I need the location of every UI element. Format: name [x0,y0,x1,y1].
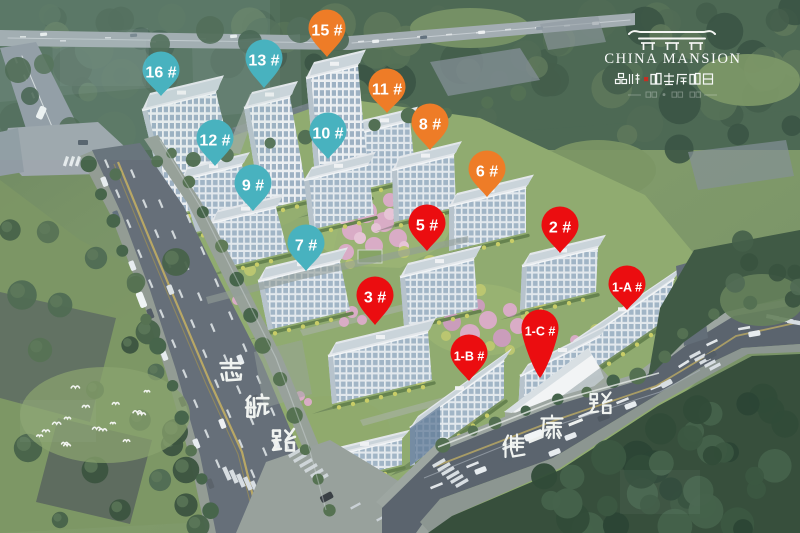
svg-text:15 #: 15 # [311,23,342,40]
svg-text:9 #: 9 # [242,178,264,195]
svg-text:2 #: 2 # [549,220,571,237]
svg-text:5 #: 5 # [416,218,438,235]
svg-text:11 #: 11 # [372,82,402,99]
svg-text:CHINA MANSION: CHINA MANSION [604,51,741,67]
svg-text:7 #: 7 # [295,238,317,255]
svg-text:1-C #: 1-C # [525,325,556,339]
svg-text:1-B #: 1-B # [454,350,485,364]
svg-text:12 #: 12 # [199,133,230,150]
svg-text:8 #: 8 # [419,117,441,134]
svg-text:16 #: 16 # [145,65,176,82]
svg-text:3 #: 3 # [364,290,386,307]
svg-text:13 #: 13 # [248,53,279,70]
svg-text:6 #: 6 # [476,164,498,181]
svg-text:1-A #: 1-A # [612,281,642,295]
svg-text:10 #: 10 # [312,126,343,143]
